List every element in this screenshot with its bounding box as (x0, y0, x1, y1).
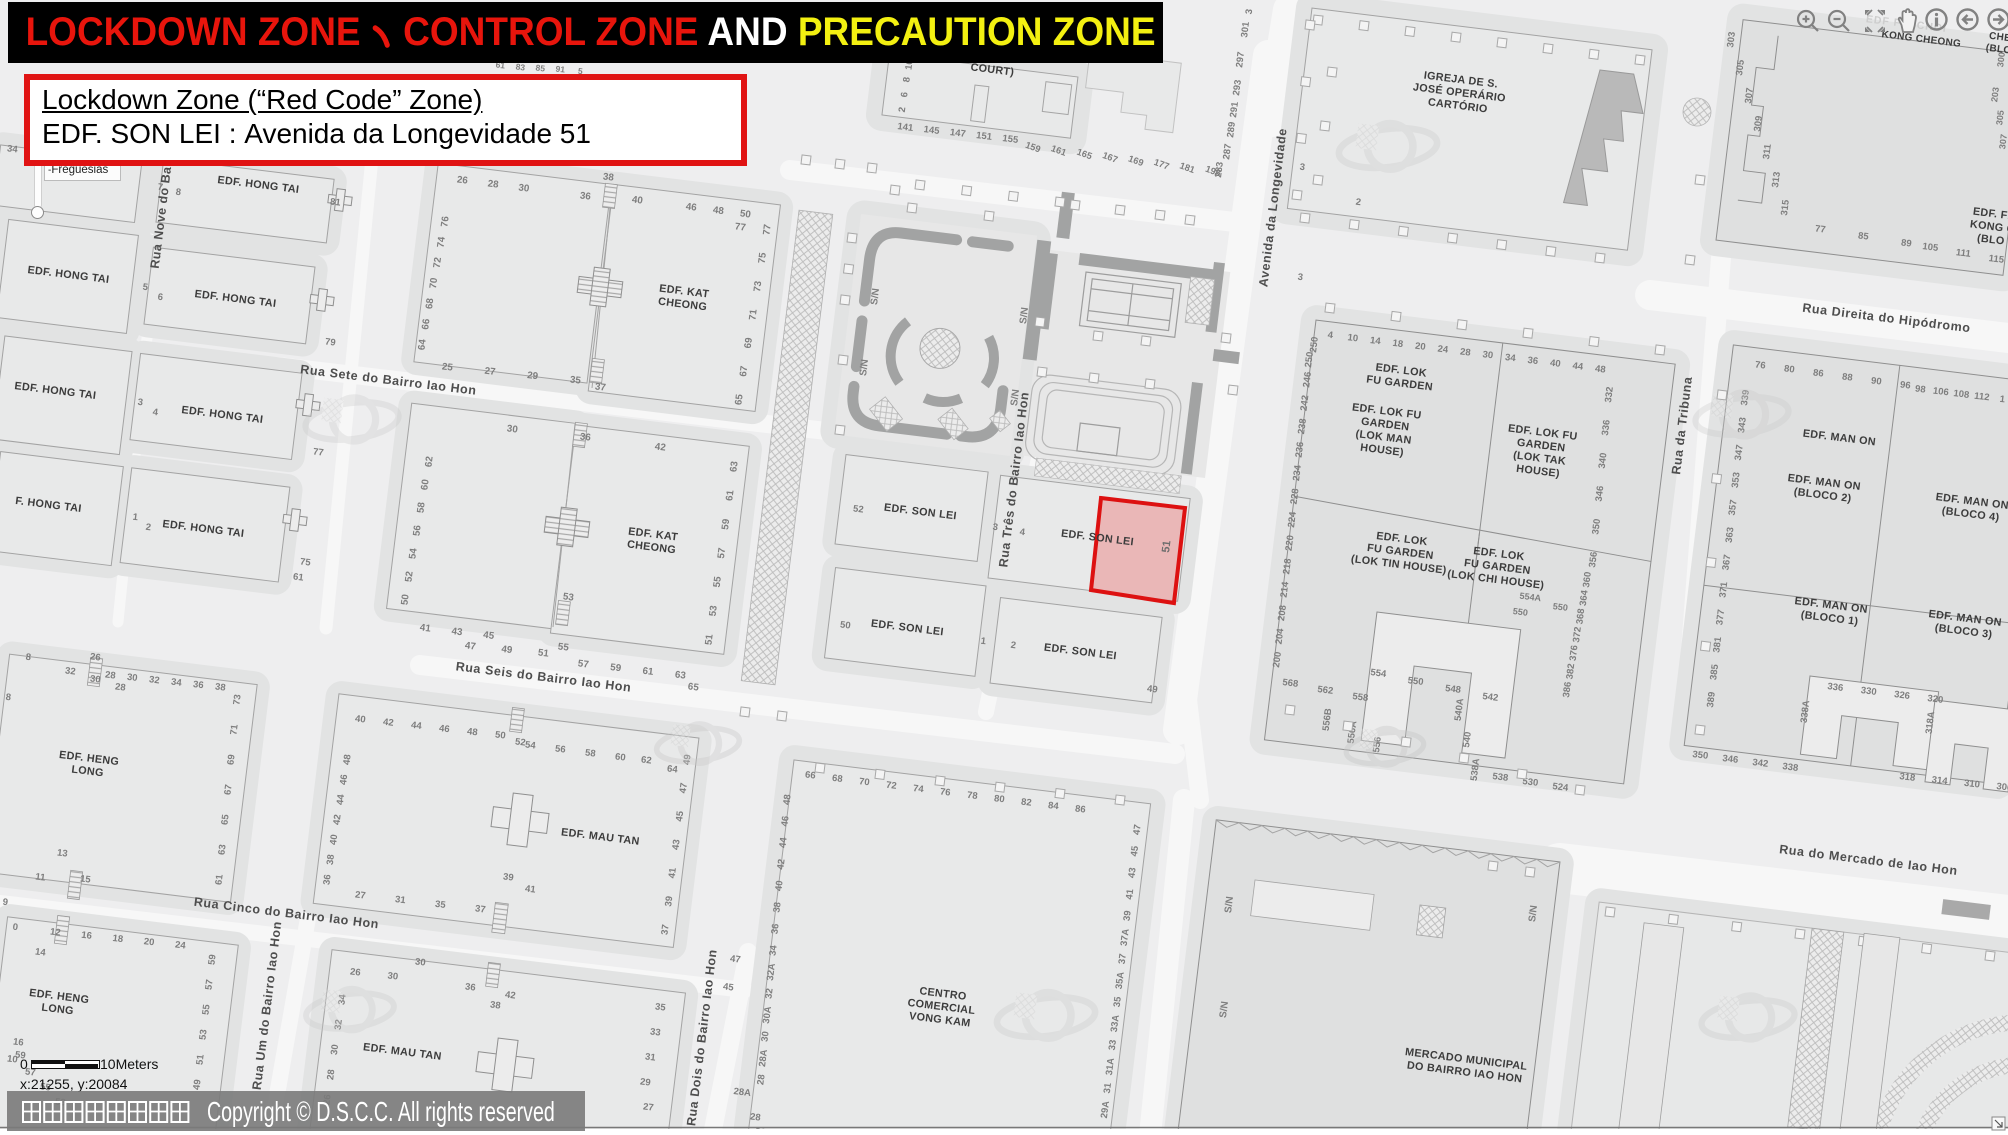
svg-text:382: 382 (1564, 663, 1577, 680)
svg-text:29: 29 (527, 370, 540, 382)
svg-text:63: 63 (728, 460, 740, 473)
svg-text:S/N: S/N (1009, 389, 1022, 407)
svg-text:35A: 35A (1114, 971, 1127, 990)
svg-text:10: 10 (1347, 332, 1359, 344)
svg-text:98: 98 (1914, 383, 1926, 395)
svg-text:30: 30 (506, 423, 519, 435)
svg-text:218: 218 (1281, 558, 1294, 575)
svg-text:73: 73 (231, 694, 243, 706)
svg-text:367: 367 (1720, 554, 1733, 571)
svg-text:20: 20 (1414, 341, 1426, 353)
svg-text:42: 42 (331, 814, 343, 826)
svg-text:36: 36 (769, 923, 781, 935)
svg-text:45: 45 (483, 630, 496, 642)
svg-text:39: 39 (1122, 910, 1134, 922)
svg-text:83: 83 (515, 61, 526, 72)
svg-text:74: 74 (436, 236, 448, 249)
svg-text:50: 50 (739, 208, 752, 220)
svg-text:57: 57 (203, 979, 215, 991)
svg-text:71: 71 (228, 723, 240, 736)
svg-text:S/N: S/N (1223, 896, 1236, 914)
svg-text:342: 342 (1752, 757, 1769, 770)
svg-text:346: 346 (1722, 753, 1739, 766)
svg-text:34: 34 (767, 944, 779, 957)
svg-text:31: 31 (644, 1051, 657, 1063)
svg-text:46: 46 (685, 201, 698, 213)
svg-text:550: 550 (1407, 675, 1424, 688)
svg-text:16: 16 (12, 1036, 24, 1048)
svg-text:214: 214 (1279, 580, 1292, 598)
svg-text:35: 35 (1112, 995, 1124, 1008)
svg-text:28: 28 (104, 669, 116, 681)
svg-text:250: 250 (1308, 336, 1321, 353)
svg-text:47: 47 (678, 782, 690, 794)
svg-text:31: 31 (1102, 1082, 1114, 1095)
svg-text:14: 14 (1369, 335, 1382, 347)
svg-text:65: 65 (687, 681, 700, 693)
svg-text:336: 336 (1827, 681, 1844, 694)
svg-text:548: 548 (1444, 683, 1461, 696)
svg-text:43: 43 (670, 839, 682, 851)
svg-text:326: 326 (1893, 689, 1910, 702)
svg-text:85: 85 (1857, 230, 1870, 242)
svg-text:38: 38 (325, 854, 337, 866)
svg-text:40: 40 (328, 834, 340, 846)
svg-text:49: 49 (191, 1079, 203, 1091)
svg-text:377: 377 (1714, 609, 1727, 626)
svg-text:311: 311 (1761, 143, 1774, 160)
svg-text:S/N: S/N (858, 359, 871, 377)
svg-text:80: 80 (1783, 363, 1795, 375)
svg-text:41: 41 (524, 883, 537, 895)
svg-text:145: 145 (923, 124, 941, 137)
svg-text:47: 47 (464, 640, 477, 652)
svg-text:105: 105 (1922, 241, 1940, 254)
svg-text:S/N: S/N (1527, 905, 1540, 923)
svg-text:242: 242 (1299, 394, 1312, 411)
svg-text:389: 389 (1705, 691, 1718, 708)
svg-text:40: 40 (1549, 358, 1561, 370)
svg-text:356: 356 (1587, 551, 1600, 568)
svg-text:554: 554 (1370, 667, 1388, 680)
svg-text:336: 336 (1600, 419, 1613, 436)
svg-text:63: 63 (674, 669, 687, 681)
svg-text:30A: 30A (761, 1006, 774, 1025)
svg-text:372: 372 (1571, 626, 1584, 643)
svg-text:36: 36 (321, 874, 333, 886)
svg-text:72: 72 (885, 780, 897, 792)
svg-text:55: 55 (712, 575, 724, 588)
svg-text:35: 35 (654, 1001, 667, 1013)
svg-text:364: 364 (1578, 589, 1591, 607)
svg-text:538: 538 (1492, 771, 1509, 784)
svg-text:32: 32 (763, 988, 775, 1000)
svg-text:45: 45 (1129, 845, 1141, 858)
svg-text:203: 203 (1989, 87, 2001, 103)
svg-text:106: 106 (1932, 386, 1949, 399)
svg-text:234: 234 (1291, 464, 1304, 482)
svg-text:303: 303 (1725, 31, 1738, 48)
svg-text:84: 84 (1047, 800, 1060, 812)
svg-text:38: 38 (602, 171, 615, 183)
svg-text:53: 53 (197, 1029, 209, 1041)
svg-text:24: 24 (1437, 344, 1450, 356)
svg-text:37: 37 (659, 924, 671, 936)
svg-text:350: 350 (1692, 749, 1709, 762)
svg-text:283: 283 (1213, 161, 1226, 178)
svg-text:72: 72 (432, 256, 444, 269)
svg-text:73: 73 (752, 280, 764, 293)
svg-text:550: 550 (1552, 601, 1568, 613)
svg-text:37: 37 (594, 381, 607, 393)
svg-text:89: 89 (1900, 237, 1912, 249)
svg-text:360: 360 (1581, 571, 1594, 588)
svg-text:29A: 29A (1099, 1100, 1112, 1119)
svg-text:385: 385 (1708, 663, 1721, 681)
svg-text:60: 60 (614, 751, 626, 763)
svg-text:47: 47 (1131, 824, 1143, 836)
svg-text:28: 28 (1459, 346, 1471, 358)
svg-text:66: 66 (420, 318, 432, 331)
svg-text:36: 36 (1527, 355, 1539, 367)
svg-text:77: 77 (734, 221, 747, 233)
svg-text:55: 55 (557, 641, 570, 653)
svg-text:41: 41 (419, 622, 432, 634)
svg-text:30: 30 (89, 673, 101, 685)
svg-text:111: 111 (1955, 247, 1972, 260)
svg-text:28: 28 (755, 1074, 767, 1086)
svg-text:69: 69 (743, 336, 755, 349)
svg-text:74: 74 (912, 783, 925, 795)
svg-text:65: 65 (219, 813, 231, 826)
svg-text:12: 12 (49, 926, 61, 938)
svg-text:30: 30 (387, 970, 399, 982)
svg-text:63: 63 (216, 844, 228, 856)
svg-text:15: 15 (79, 873, 92, 885)
svg-text:289: 289 (1225, 121, 1238, 138)
svg-text:30: 30 (329, 1044, 341, 1056)
svg-text:48: 48 (712, 205, 725, 217)
svg-text:52: 52 (403, 570, 415, 583)
svg-text:115: 115 (1988, 253, 2005, 266)
svg-text:36: 36 (464, 981, 476, 993)
svg-text:200: 200 (1271, 651, 1284, 668)
svg-text:57: 57 (577, 658, 590, 670)
svg-text:64: 64 (666, 763, 679, 775)
svg-text:71: 71 (747, 308, 759, 321)
svg-text:70: 70 (858, 776, 870, 788)
svg-text:76: 76 (939, 786, 951, 798)
svg-text:28A: 28A (733, 1086, 752, 1099)
svg-text:78: 78 (966, 790, 978, 802)
svg-text:314: 314 (1931, 774, 1949, 787)
svg-text:236: 236 (1294, 441, 1307, 458)
svg-text:30: 30 (759, 1031, 771, 1043)
svg-text:77: 77 (312, 446, 324, 458)
svg-text:108: 108 (1953, 388, 1970, 401)
svg-text:50: 50 (494, 729, 506, 741)
svg-text:55: 55 (200, 1003, 212, 1016)
svg-text:30: 30 (414, 956, 426, 968)
svg-text:41: 41 (667, 866, 679, 879)
svg-text:28: 28 (487, 178, 500, 190)
svg-text:562: 562 (1317, 684, 1334, 697)
svg-text:48: 48 (341, 754, 353, 766)
svg-text:34: 34 (6, 143, 19, 155)
svg-text:16: 16 (81, 930, 93, 942)
svg-text:60: 60 (419, 478, 431, 491)
svg-text:36: 36 (579, 190, 592, 202)
svg-text:27: 27 (354, 889, 366, 901)
svg-text:39: 39 (502, 871, 514, 883)
svg-text:69: 69 (225, 754, 237, 766)
svg-text:315: 315 (1779, 198, 1792, 216)
svg-text:36: 36 (192, 679, 204, 691)
svg-text:40: 40 (354, 713, 366, 725)
svg-text:381: 381 (1711, 636, 1724, 654)
svg-text:28A: 28A (757, 1049, 770, 1068)
svg-text:18: 18 (1392, 338, 1404, 350)
svg-text:550: 550 (1512, 606, 1528, 618)
svg-text:297: 297 (1234, 51, 1247, 68)
svg-text:81: 81 (329, 196, 342, 208)
svg-text:32A: 32A (765, 963, 778, 982)
svg-text:43: 43 (451, 626, 464, 638)
svg-text:82: 82 (1020, 797, 1032, 809)
svg-text:67: 67 (738, 365, 750, 378)
svg-text:309: 309 (1752, 115, 1765, 132)
svg-text:30: 30 (126, 672, 138, 684)
svg-text:35: 35 (569, 374, 582, 386)
svg-text:306: 306 (1996, 781, 2008, 794)
svg-text:85: 85 (535, 62, 546, 73)
svg-text:30: 30 (1482, 349, 1494, 361)
svg-text:68: 68 (831, 773, 843, 785)
svg-text:88: 88 (1841, 371, 1853, 383)
svg-text:300: 300 (1995, 52, 2007, 68)
svg-text:44: 44 (777, 836, 789, 849)
svg-text:43: 43 (1126, 867, 1138, 879)
svg-text:28: 28 (325, 1069, 337, 1081)
svg-text:53: 53 (708, 604, 720, 617)
svg-text:330: 330 (1860, 685, 1877, 698)
svg-text:350: 350 (1590, 518, 1603, 535)
svg-text:59: 59 (206, 954, 218, 966)
svg-text:36: 36 (579, 431, 592, 443)
svg-text:220: 220 (1284, 534, 1297, 551)
svg-text:75: 75 (299, 556, 312, 568)
svg-text:80: 80 (993, 793, 1005, 805)
svg-text:371: 371 (1717, 581, 1730, 599)
svg-text:70: 70 (428, 277, 440, 290)
svg-text:42: 42 (504, 989, 516, 1001)
svg-text:224: 224 (1286, 510, 1299, 528)
svg-text:61: 61 (213, 873, 225, 886)
svg-text:28: 28 (114, 681, 126, 693)
svg-text:368: 368 (1574, 608, 1587, 625)
svg-text:301: 301 (1239, 20, 1252, 38)
svg-text:310: 310 (1963, 778, 1980, 791)
svg-text:40: 40 (631, 194, 644, 206)
svg-text:S/N: S/N (1218, 1001, 1231, 1019)
svg-text:86: 86 (1812, 367, 1824, 379)
svg-text:48: 48 (466, 726, 478, 738)
svg-text:45: 45 (674, 810, 686, 823)
svg-text:30: 30 (518, 182, 531, 194)
svg-text:293: 293 (1231, 79, 1244, 96)
svg-text:77: 77 (1814, 223, 1826, 235)
svg-text:34: 34 (170, 677, 183, 689)
svg-text:353: 353 (1730, 471, 1743, 488)
svg-text:542: 542 (1482, 691, 1499, 704)
svg-text:305: 305 (1734, 58, 1747, 76)
svg-text:61: 61 (642, 666, 655, 678)
svg-text:250: 250 (1303, 351, 1316, 368)
svg-text:141: 141 (897, 121, 915, 134)
svg-text:49: 49 (501, 644, 514, 656)
svg-text:29: 29 (639, 1076, 651, 1088)
svg-text:376: 376 (1568, 645, 1581, 662)
svg-text:568: 568 (1282, 677, 1299, 690)
svg-text:51: 51 (194, 1053, 206, 1066)
svg-text:48: 48 (1594, 363, 1606, 375)
svg-text:35: 35 (434, 899, 447, 911)
svg-text:27: 27 (642, 1101, 654, 1113)
svg-text:147: 147 (949, 127, 966, 140)
svg-text:45: 45 (722, 981, 735, 993)
svg-text:37: 37 (1117, 953, 1129, 965)
svg-text:42: 42 (654, 441, 667, 453)
svg-text:357: 357 (1727, 499, 1740, 516)
svg-text:151: 151 (976, 130, 994, 143)
svg-text:347: 347 (1733, 444, 1746, 461)
svg-text:62: 62 (423, 455, 435, 468)
svg-text:155: 155 (1002, 133, 1020, 146)
svg-text:37: 37 (474, 903, 486, 915)
svg-text:51: 51 (1160, 540, 1173, 554)
svg-text:53: 53 (562, 591, 575, 603)
svg-text:33A: 33A (1109, 1014, 1122, 1033)
svg-text:558: 558 (1352, 691, 1369, 704)
svg-text:S/N: S/N (869, 288, 882, 306)
svg-text:26: 26 (89, 651, 101, 663)
svg-text:67: 67 (222, 784, 234, 796)
svg-text:50: 50 (399, 593, 411, 606)
svg-text:208: 208 (1276, 604, 1289, 621)
svg-text:64: 64 (416, 338, 428, 351)
svg-text:46: 46 (438, 723, 450, 735)
svg-text:44: 44 (410, 720, 423, 732)
svg-text:320: 320 (1927, 693, 1944, 706)
svg-text:18: 18 (112, 933, 124, 945)
svg-text:44: 44 (1572, 361, 1585, 373)
svg-text:34: 34 (1504, 352, 1517, 364)
svg-text:59: 59 (720, 518, 732, 531)
svg-text:38: 38 (214, 681, 226, 693)
svg-text:338: 338 (1782, 761, 1799, 774)
svg-text:46: 46 (779, 815, 791, 827)
svg-text:346: 346 (1594, 485, 1607, 502)
svg-text:26: 26 (456, 174, 469, 186)
svg-text:318: 318 (1899, 771, 1916, 784)
svg-text:76: 76 (439, 215, 451, 228)
svg-text:49: 49 (1146, 683, 1158, 695)
svg-text:27: 27 (484, 366, 497, 378)
svg-text:524: 524 (1552, 781, 1570, 794)
svg-text:91: 91 (555, 64, 566, 75)
svg-text:58: 58 (584, 747, 596, 759)
svg-text:59: 59 (610, 662, 623, 674)
svg-text:31: 31 (394, 894, 407, 906)
svg-text:62: 62 (640, 754, 652, 766)
svg-text:540: 540 (1461, 731, 1474, 748)
svg-text:228: 228 (1289, 488, 1302, 505)
svg-text:33: 33 (649, 1026, 661, 1038)
svg-text:54: 54 (524, 739, 537, 751)
svg-text:14: 14 (34, 946, 47, 958)
svg-text:50: 50 (839, 619, 851, 631)
svg-text:37A: 37A (1119, 928, 1132, 947)
svg-text:42: 42 (775, 858, 787, 870)
svg-text:24: 24 (174, 939, 187, 951)
svg-text:28: 28 (749, 1111, 761, 1123)
svg-text:41: 41 (1124, 888, 1136, 901)
svg-text:386: 386 (1561, 681, 1574, 698)
svg-text:79: 79 (324, 336, 336, 348)
svg-text:56: 56 (411, 524, 423, 537)
svg-text:291: 291 (1228, 100, 1241, 118)
svg-text:33: 33 (1107, 1039, 1119, 1051)
svg-text:31A: 31A (1104, 1057, 1117, 1076)
svg-text:38: 38 (489, 999, 501, 1011)
svg-text:39: 39 (663, 895, 675, 907)
svg-text:52: 52 (852, 503, 864, 515)
svg-text:13: 13 (56, 847, 68, 859)
svg-text:58: 58 (415, 501, 427, 514)
svg-text:66: 66 (804, 769, 816, 781)
svg-text:26: 26 (349, 966, 361, 978)
svg-text:287: 287 (1221, 143, 1234, 160)
svg-text:112: 112 (1974, 391, 1991, 404)
svg-text:54: 54 (407, 547, 419, 560)
svg-text:51: 51 (703, 633, 715, 646)
svg-text:246: 246 (1301, 371, 1314, 388)
svg-text:65: 65 (733, 393, 745, 406)
svg-text:32: 32 (64, 665, 76, 677)
svg-text:363: 363 (1724, 526, 1737, 543)
svg-text:25: 25 (441, 361, 454, 373)
svg-text:38: 38 (771, 901, 783, 913)
svg-text:340: 340 (1597, 452, 1610, 469)
svg-text:76: 76 (1754, 359, 1766, 371)
svg-text:56: 56 (554, 743, 566, 755)
svg-text:307: 307 (1743, 87, 1756, 104)
svg-text:48: 48 (781, 794, 793, 806)
svg-text:86: 86 (1074, 803, 1086, 815)
svg-text:313: 313 (1770, 171, 1783, 188)
svg-text:204: 204 (1274, 627, 1287, 645)
svg-text:305: 305 (1994, 110, 2006, 126)
svg-text:307: 307 (1997, 134, 2008, 150)
svg-text:332: 332 (1603, 386, 1616, 403)
svg-text:32: 32 (148, 674, 160, 686)
svg-text:44: 44 (335, 793, 347, 806)
svg-text:42: 42 (382, 717, 394, 729)
svg-text:51: 51 (537, 647, 550, 659)
svg-text:S/N: S/N (1018, 307, 1031, 325)
svg-text:47: 47 (729, 953, 741, 965)
svg-text:40: 40 (773, 880, 785, 892)
